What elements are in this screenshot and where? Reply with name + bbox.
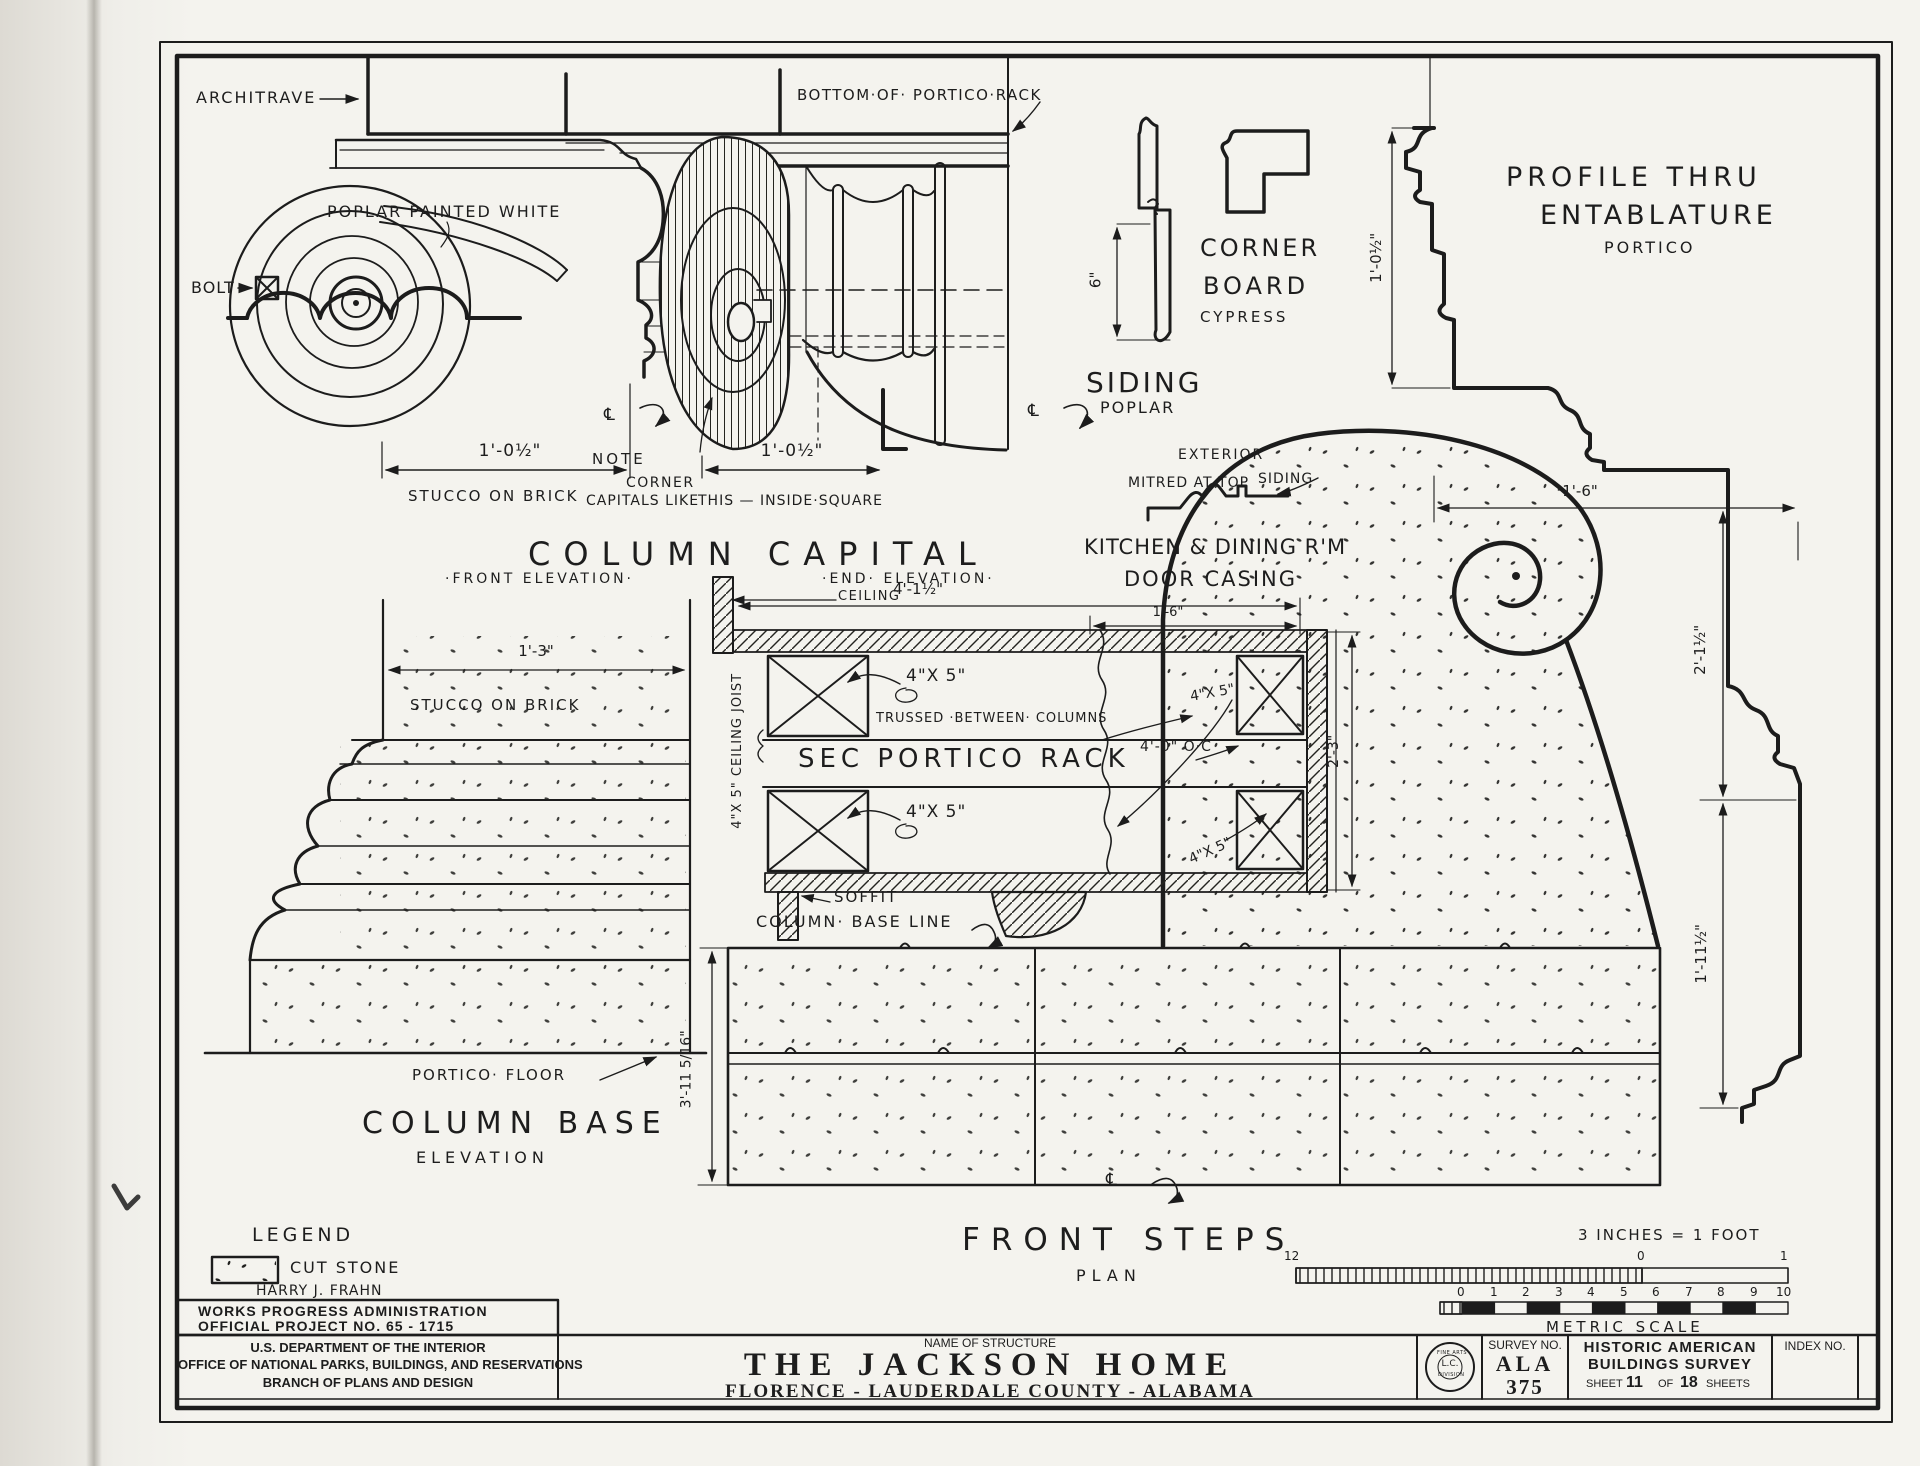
- label-corner: CORNER: [1200, 236, 1320, 261]
- sheet-mid: OF: [1658, 1379, 1673, 1391]
- metric-num-3: 3: [1555, 1286, 1563, 1299]
- dim-casing-height: 2'-3": [1327, 735, 1342, 768]
- survey-no-line2: 375: [1484, 1376, 1566, 1398]
- sub-plan: PLAN: [1076, 1268, 1142, 1285]
- structure-name: THE JACKSON HOME: [660, 1348, 1320, 1383]
- dept-line2: OFFICE OF NATIONAL PARKS, BUILDINGS, AND…: [178, 1358, 558, 1372]
- label-metric-scale: METRIC SCALE: [1546, 1320, 1704, 1336]
- dim-rack-width: 4'-1½": [858, 582, 978, 598]
- stamp-top: FINE ARTS: [1437, 1351, 1467, 1356]
- dept-line3: BRANCH OF PLANS AND DESIGN: [178, 1376, 558, 1390]
- label-architrave: ARCHITRAVE: [196, 90, 316, 107]
- centerline-symbol-steps: ℄: [1106, 1172, 1117, 1190]
- sheet-suffix: SHEETS: [1706, 1379, 1750, 1391]
- legend-cut-stone: CUT STONE: [290, 1260, 400, 1277]
- scale-1: 1: [1780, 1250, 1788, 1263]
- label-joist-1: 4"X 5": [906, 668, 966, 686]
- wpa-line1: WORKS PROGRESS ADMINISTRATION: [198, 1304, 488, 1319]
- label-trussed: TRUSSED ·BETWEEN· COLUMNS: [876, 712, 1107, 726]
- dim-steps-height: 3'-11 5/16": [680, 1030, 695, 1108]
- wpa-line2: OFFICIAL PROJECT NO. 65 - 1715: [198, 1319, 454, 1334]
- legend-author: HARRY J. FRAHN: [256, 1284, 383, 1299]
- title-column-base: COLUMN BASE: [362, 1108, 669, 1140]
- dim-profile-upper: 2'-1½": [1693, 625, 1709, 675]
- label-mitred-at-top: MITRED AT TOP: [1128, 476, 1249, 491]
- index-label: INDEX NO.: [1772, 1340, 1858, 1353]
- label-stucco-on-brick-base: STUCCO ON BRICK: [410, 698, 580, 714]
- stamp-mid: L.C.: [1438, 1360, 1462, 1369]
- label-door-casing: DOOR CASING: [1124, 568, 1297, 590]
- legend-title: LEGEND: [252, 1226, 354, 1246]
- scale-note: 3 INCHES = 1 FOOT: [1578, 1228, 1761, 1244]
- dim-profile-lower: 1'-11½": [1694, 924, 1710, 984]
- survey-no-line1: ALA: [1484, 1352, 1566, 1375]
- note-line1: NOTE: [592, 452, 646, 468]
- label-cypress: CYPRESS: [1200, 310, 1288, 326]
- note-line4: THIS — INSIDE·SQUARE: [698, 494, 883, 509]
- sub-elevation: ELEVATION: [416, 1150, 549, 1167]
- metric-num-0: 0: [1457, 1286, 1465, 1299]
- label-column-base-line: COLUMN· BASE LINE: [756, 914, 953, 931]
- dim-siding-6: 6": [1088, 272, 1104, 288]
- note-line2: CORNER: [626, 476, 695, 491]
- title-front-steps: FRONT STEPS: [962, 1224, 1295, 1257]
- habs-sheet: { "colors": { "ink": "#1c1c1c", "paper":…: [0, 0, 1920, 1466]
- scale-12: 12: [1284, 1250, 1299, 1263]
- dim-capital-front: 1'-0½": [430, 443, 590, 461]
- metric-num-7: 7: [1685, 1286, 1693, 1299]
- structure-location: FLORENCE - LAUDERDALE COUNTY - ALABAMA: [660, 1382, 1320, 1402]
- metric-num-1: 1: [1490, 1286, 1498, 1299]
- dim-profile-width: 1'-6": [1520, 484, 1640, 500]
- label-board: BOARD: [1203, 274, 1309, 299]
- label-ceiling-joist-vert: 4"X 5" CEILING JOIST: [731, 673, 745, 829]
- label-stucco-on-brick-capital: STUCCO ON BRICK: [408, 489, 578, 505]
- metric-num-8: 8: [1717, 1286, 1725, 1299]
- label-siding: SIDING: [1086, 368, 1203, 397]
- centerline-symbol-front: ℄: [604, 407, 615, 425]
- dim-capital-end: 1'-0½": [712, 443, 872, 461]
- label-soffit: SOFFIT: [834, 890, 898, 906]
- metric-num-10: 10: [1776, 1286, 1791, 1299]
- dept-line1: U.S. DEPARTMENT OF THE INTERIOR: [178, 1341, 558, 1355]
- dim-base-width: 1'-3": [456, 644, 616, 660]
- metric-num-6: 6: [1652, 1286, 1660, 1299]
- sheet-no: 11: [1626, 1375, 1643, 1392]
- profile-title-1: PROFILE THRU: [1506, 164, 1762, 192]
- dim-casing-width: 1'-6": [1128, 606, 1208, 620]
- metric-num-4: 4: [1587, 1286, 1595, 1299]
- title-column-capital: COLUMN CAPITAL: [528, 538, 989, 572]
- label-kitchen-dining: KITCHEN & DINING R'M: [1084, 536, 1346, 558]
- sheet-prefix: SHEET: [1586, 1379, 1623, 1391]
- sub-front-elevation: ·FRONT ELEVATION·: [445, 572, 634, 587]
- profile-title-2: ENTABLATURE: [1540, 202, 1777, 230]
- dim-profile-height: 1'-0½": [1369, 233, 1385, 283]
- stamp-bottom: DIVISION: [1438, 1373, 1465, 1378]
- label-bolt: BOLT: [191, 280, 235, 297]
- scale-0: 0: [1637, 1250, 1645, 1263]
- label-poplar: POPLAR: [1100, 400, 1175, 417]
- label-portico-floor: PORTICO· FLOOR: [412, 1068, 566, 1084]
- metric-num-9: 9: [1750, 1286, 1758, 1299]
- habs-line1: HISTORIC AMERICAN: [1570, 1340, 1770, 1356]
- label-joist-2: 4"X 5": [906, 804, 966, 822]
- survey-label: SURVEY NO.: [1484, 1339, 1566, 1352]
- metric-num-2: 2: [1522, 1286, 1530, 1299]
- centerline-symbol-end: ℄: [1028, 403, 1039, 421]
- metric-num-5: 5: [1620, 1286, 1628, 1299]
- sheet-total: 18: [1680, 1375, 1698, 1392]
- label-exterior: EXTERIOR: [1178, 448, 1264, 463]
- profile-title-3: PORTICO: [1604, 240, 1695, 257]
- label-bottom-of-portico-rack: BOTTOM·OF· PORTICO·RACK: [797, 88, 1042, 104]
- label-sec-portico-rack: SEC PORTICO RACK: [798, 746, 1130, 773]
- note-line3: CAPITALS LIKE: [586, 494, 699, 509]
- label-poplar-painted-white: POPLAR PAINTED WHITE: [327, 204, 561, 221]
- habs-line2: BUILDINGS SURVEY: [1570, 1357, 1770, 1373]
- label-oc-dim: 4'-0" O·C: [1140, 740, 1212, 755]
- label-siding-small: SIDING: [1258, 472, 1313, 487]
